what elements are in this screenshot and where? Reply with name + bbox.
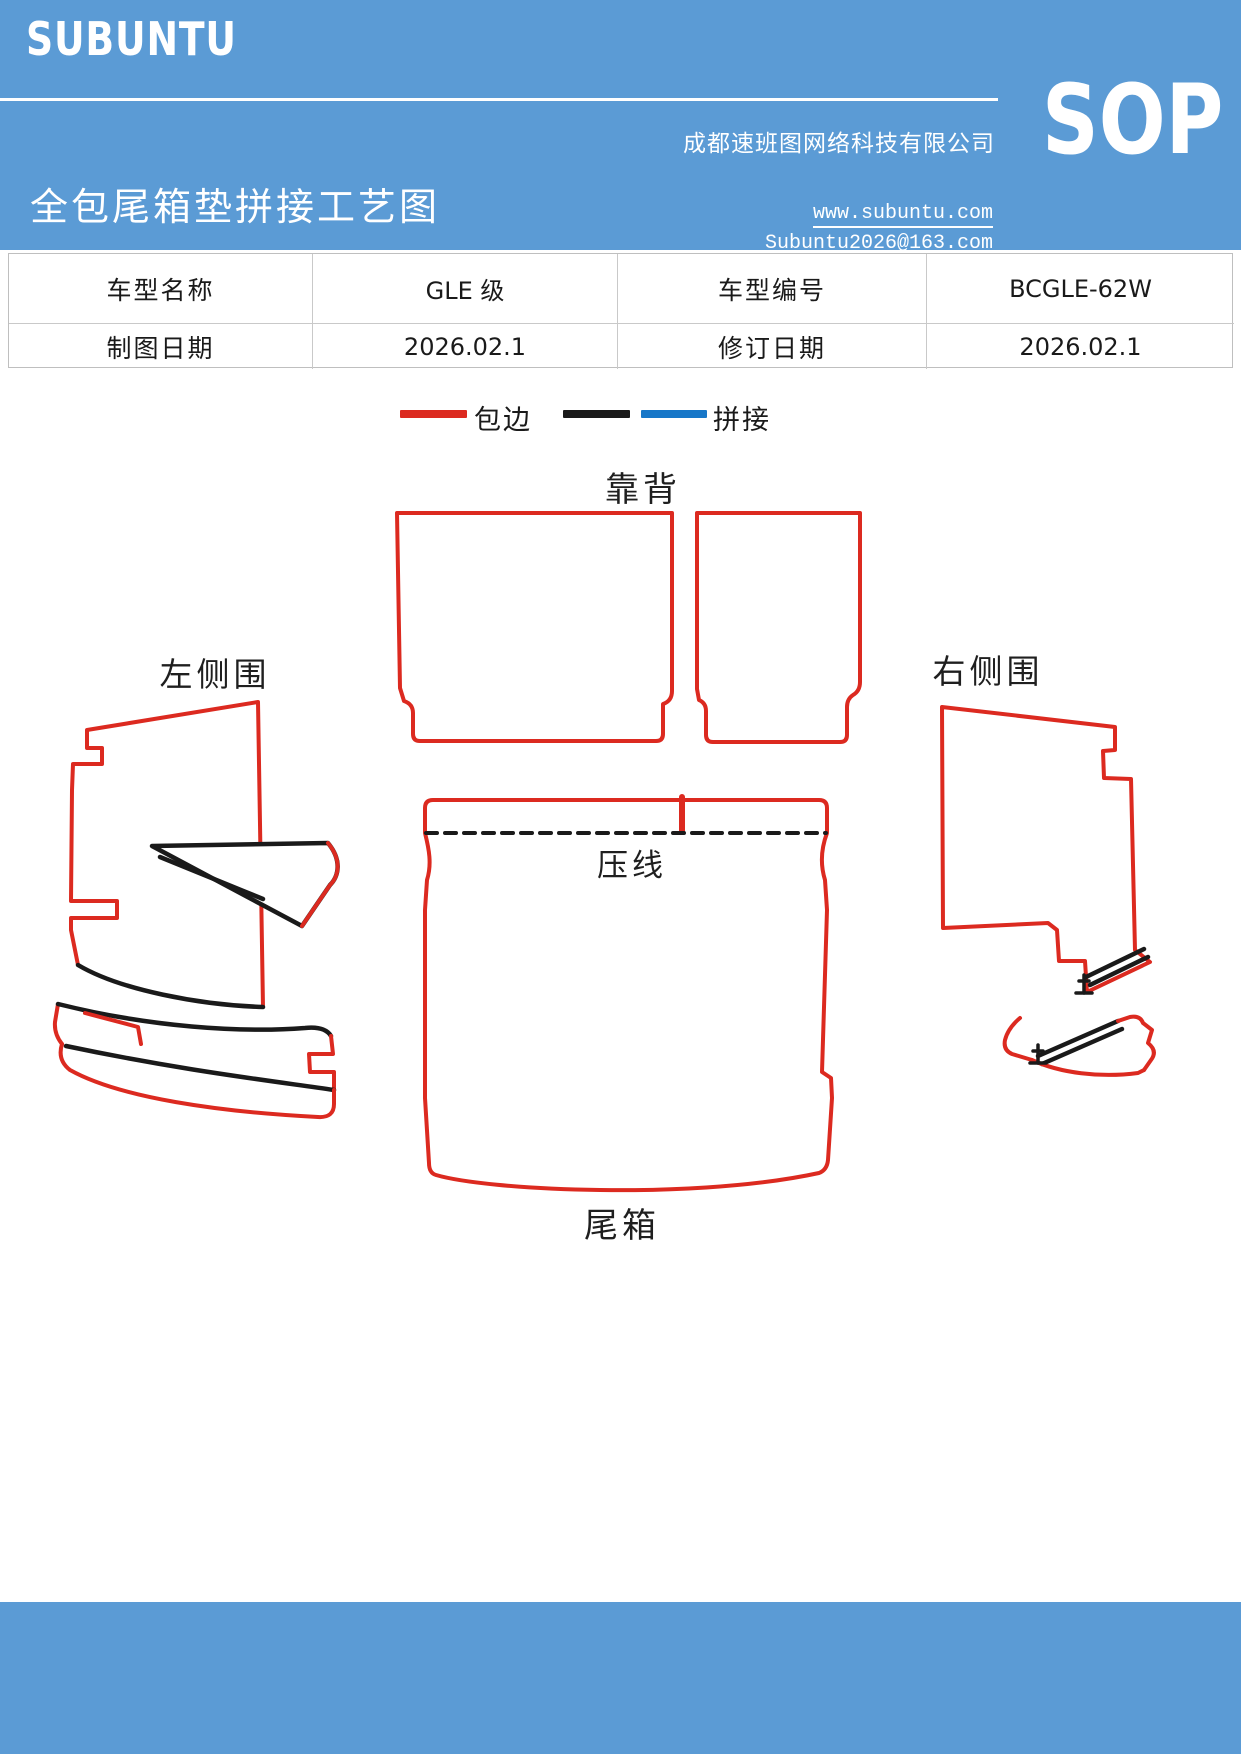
table-cell-model-name-label: 车型名称 [9,254,313,324]
legend-splice-label: 拼接 [713,398,771,437]
table-cell-draw-date-value: 2026.02.1 [313,324,618,369]
table-cell-model-name-value: GLE 级 [313,254,618,324]
sop-document-page: SUBUNTU 成都速班图网络科技有限公司 全包尾箱垫拼接工艺图 www.sub… [0,0,1241,1754]
backrest-left-outline [397,513,672,741]
legend-edge-label: 包边 [474,398,532,437]
legend-edge-swatch [400,410,467,418]
right-panel-splice-b1 [1038,1021,1118,1056]
right-panel-splice-b2 [1042,1029,1122,1064]
brand-logo: SUBUNTU [26,12,237,66]
banner-divider [0,98,998,101]
table-cell-model-code-value: BCGLE-62W [927,254,1234,324]
right-panel-outline [942,707,1150,992]
right-panel-lower-piece [1005,1018,1032,1060]
footer-banner: 成都速班图网络科技有限公司 www.subuntu.com [0,1602,1241,1754]
table-cell-draw-date-label: 制图日期 [9,324,313,369]
trunk-outline [425,800,832,1190]
table-cell-revision-date-label: 修订日期 [618,324,927,369]
vehicle-info-table: 车型名称 GLE 级 车型编号 BCGLE-62W 制图日期 2026.02.1… [8,253,1233,368]
left-panel-bottom-splice [78,965,263,1007]
banner-company-name: 成都速班图网络科技有限公司 [683,124,995,158]
pattern-diagram [0,440,1241,1260]
banner-email: Subuntu2026@163.com [765,232,993,255]
left-strip-top-splice [58,1004,331,1036]
table-cell-model-code-label: 车型编号 [618,254,927,324]
legend-splice-black-swatch [563,410,630,418]
left-strip-left-edge [55,1004,62,1044]
sop-badge: SOP [1042,72,1223,168]
top-banner: SUBUNTU 成都速班图网络科技有限公司 全包尾箱垫拼接工艺图 www.sub… [0,0,1241,250]
legend-splice-blue-swatch [641,410,707,418]
backrest-right-outline [697,513,860,742]
banner-website-link[interactable]: www.subuntu.com [813,202,993,228]
page-title: 全包尾箱垫拼接工艺图 [30,176,440,231]
left-strip-right-notch [309,1036,334,1090]
right-panel-lower-right-edge [1118,1017,1154,1070]
table-cell-revision-date-value: 2026.02.1 [927,324,1234,369]
